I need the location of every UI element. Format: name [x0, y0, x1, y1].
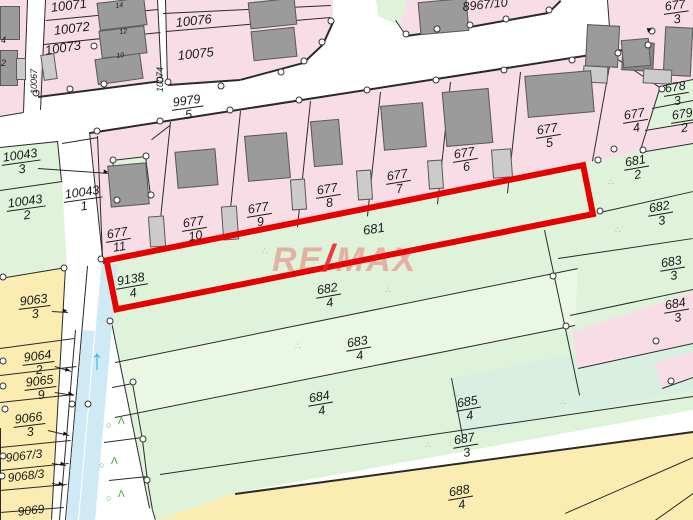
building — [442, 88, 494, 147]
parcel-label-p677-6: 6776 — [451, 145, 480, 176]
parcel-label-p677-9: 6779 — [245, 200, 274, 231]
map-symbol: ∴ — [425, 441, 431, 450]
building — [148, 215, 166, 247]
cadastral-map: ∴∴∴∴∴∴∴∴○Λ○Λ○Λ▸▸▸▸▸▸▸↑► RE/MAX 100711007… — [0, 0, 693, 520]
map-symbol: ↑ — [90, 346, 104, 374]
parcel-label-hn10: 10 — [116, 52, 125, 60]
parcel-label-p684-3: 6843 — [662, 296, 691, 327]
parcel-label-p677-10: 67710 — [180, 214, 209, 245]
parcel-label-v10067: 10067 — [30, 69, 39, 94]
survey-node — [563, 323, 570, 330]
parcel-label-p9979-5: 99795 — [170, 93, 205, 124]
map-symbol: ∴ — [295, 342, 301, 351]
survey-node — [61, 265, 68, 272]
parcel-label-p10043-3: 100433 — [0, 147, 42, 179]
building — [427, 160, 444, 190]
parcel-label-p687-3: 6873 — [451, 431, 480, 462]
building — [16, 58, 26, 80]
map-symbol: ▸ — [63, 429, 69, 439]
survey-node — [501, 67, 508, 74]
building — [356, 170, 373, 201]
map-symbol: ▸ — [60, 459, 65, 468]
map-symbol: Λ — [111, 457, 118, 467]
map-symbol: Λ — [118, 490, 125, 500]
map-symbol: ▸ — [63, 306, 68, 315]
survey-node — [319, 39, 326, 46]
survey-node — [615, 50, 622, 57]
building — [310, 119, 343, 167]
parcel-label-p10043-2: 100432 — [5, 193, 47, 225]
parcel-label-edge4: 4 — [1, 36, 6, 45]
survey-node — [94, 128, 101, 135]
survey-node — [546, 7, 553, 14]
survey-node — [227, 107, 234, 114]
building — [524, 70, 594, 118]
survey-node — [668, 378, 675, 385]
map-symbol: ∴ — [560, 398, 566, 407]
survey-node — [364, 87, 371, 94]
survey-node — [328, 18, 335, 25]
parcel-label-p684-4: 6844 — [306, 389, 335, 420]
survey-node — [611, 146, 618, 153]
parcel-label-p9066-3: 90663 — [12, 410, 47, 441]
parcel-label-p677-7: 6777 — [384, 167, 413, 198]
survey-node — [503, 16, 510, 23]
survey-node — [148, 192, 155, 199]
parcel-label-p677-3: 6773 — [662, 0, 690, 28]
parcel-label-p679-2: 6792 — [669, 106, 693, 137]
parcel-label-edge2: 2 — [1, 59, 6, 68]
map-symbol: Λ — [118, 417, 125, 427]
parcel-label-p9063-3: 90633 — [17, 292, 52, 323]
building — [174, 148, 218, 188]
survey-node — [140, 436, 147, 443]
parcel-label-p681: 681 — [362, 221, 386, 238]
parcel-label-p682-4: 6824 — [314, 281, 343, 312]
remax-watermark: RE/MAX — [272, 238, 417, 281]
parcel-label-p677-11: 67711 — [104, 225, 133, 256]
survey-node — [69, 401, 76, 408]
survey-node — [653, 338, 660, 345]
map-symbol: ○ — [99, 461, 104, 470]
survey-node — [218, 83, 225, 90]
survey-node — [165, 79, 172, 86]
map-symbol: ○ — [106, 494, 111, 503]
parcel-label-v10074: 10074 — [156, 67, 165, 92]
parcel-label-p677-4: 6774 — [621, 106, 650, 137]
building — [244, 132, 291, 182]
building — [491, 148, 513, 178]
parcel-label-p688-4: 6884 — [446, 483, 475, 514]
map-symbol: ∴ — [615, 226, 621, 235]
survey-node — [107, 318, 114, 325]
survey-node — [278, 69, 285, 76]
survey-node — [114, 197, 121, 204]
parcel-label-p685-4: 6854 — [454, 394, 483, 425]
survey-node — [144, 477, 151, 484]
survey-node — [101, 81, 108, 88]
parcel-label-hn14: 14 — [115, 2, 124, 10]
parcel-label-hn12: 12 — [119, 28, 128, 36]
watermark-slash: / — [323, 238, 336, 280]
map-symbol: ▸ — [65, 365, 71, 375]
survey-node — [467, 22, 474, 29]
watermark-re: RE — [272, 241, 323, 279]
parcel-label-p9065-9: 90659 — [23, 373, 58, 404]
survey-node — [301, 58, 308, 65]
survey-node — [130, 379, 137, 386]
survey-node — [403, 31, 410, 38]
survey-node — [85, 401, 92, 408]
parcel-label-p681-2: 6812 — [622, 153, 651, 184]
parcel-label-p10043-1: 100431 — [62, 184, 104, 216]
map-symbol: ∴ — [385, 286, 391, 295]
survey-node — [597, 208, 604, 215]
parcel-label-p9138-4: 91384 — [114, 270, 150, 302]
building — [585, 24, 620, 68]
map-symbol: ▸ — [58, 479, 63, 488]
parcel-label-p683-4: 6834 — [344, 334, 373, 365]
survey-node — [91, 43, 98, 50]
building — [251, 27, 298, 61]
parcel-label-p677-5: 6775 — [534, 121, 563, 152]
survey-node — [67, 86, 74, 93]
parcel-label-p683-3: 6833 — [658, 254, 687, 285]
survey-node — [110, 157, 117, 164]
parcel-label-p9069: 9069 — [17, 503, 45, 519]
survey-node — [434, 26, 441, 33]
building — [380, 102, 427, 151]
watermark-max: MAX — [336, 241, 418, 279]
parcel-label-p677-8: 6778 — [314, 181, 343, 212]
building — [290, 179, 307, 211]
map-symbol: ▸ — [68, 389, 74, 399]
building — [248, 0, 298, 29]
survey-node — [2, 406, 9, 413]
survey-node — [143, 153, 150, 160]
survey-node — [569, 57, 576, 64]
survey-node — [595, 157, 602, 164]
map-symbol: ▸ — [103, 167, 108, 176]
parcel-label-p682-3: 6823 — [646, 199, 675, 230]
survey-node — [645, 42, 652, 49]
map-symbol: ○ — [106, 421, 111, 430]
survey-node — [157, 118, 164, 125]
survey-node — [296, 97, 303, 104]
survey-node — [433, 77, 440, 84]
map-symbol: ∴ — [608, 178, 614, 187]
survey-node — [550, 273, 557, 280]
